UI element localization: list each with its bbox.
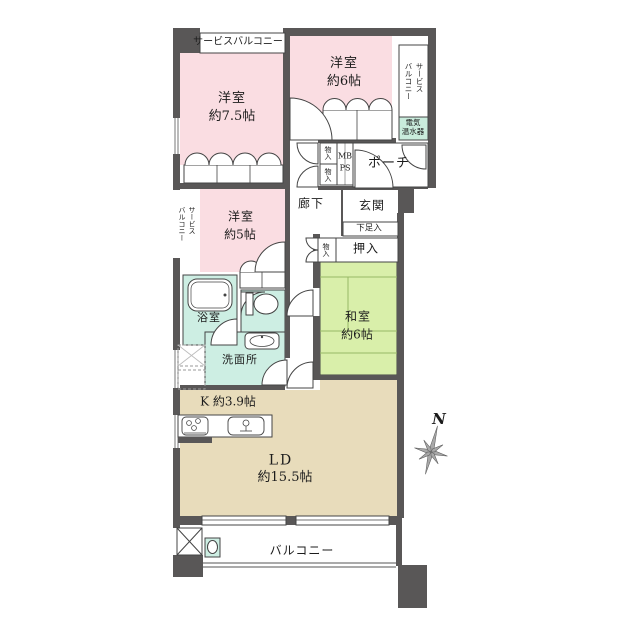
window-sill [296,516,389,525]
label-oshiire: 押入 [353,242,379,255]
label-western-6-size: 約6帖 [327,75,361,89]
label-closet: 物入 [324,146,332,160]
label-water-heater-2: 温水器 [402,128,425,136]
label-service-balcony-top: サービスバルコニー [193,37,283,48]
label-balcony: バルコニー [270,544,335,557]
label-service-balcony-right: サービス バルコニー [403,62,425,100]
label-hallway: 廊下 [298,197,324,210]
closet-strip [240,272,285,288]
label-ld-size: 約15.5帖 [258,471,313,485]
washbasin-fixture [245,333,279,349]
closet-strip [323,110,392,140]
balcony-rail [203,563,396,567]
label-bathroom: 浴室 [197,312,221,324]
label-mb: MB [338,153,352,162]
closet-strip [184,165,283,183]
label-japanese-room-size: 約6帖 [341,328,373,341]
toilet-fixture [246,293,278,315]
slop-sink-basin [208,541,218,554]
label-shoe-closet: 下足入 [356,224,382,233]
label-western-5-name: 洋室 [228,210,254,223]
label-western-5-size: 約5帖 [224,228,256,241]
label-water-heater-1: 電気 [406,119,421,127]
label-ld-name: LD [269,453,294,468]
laundry-space [178,345,205,389]
bathtub-fixture [188,279,232,311]
label-western-6-name: 洋室 [330,57,358,71]
label-western-75-size: 約7.5帖 [209,110,256,124]
window-sill [202,516,286,525]
floor-plan: サービスバルコニー 洋室 約7.5帖 洋室 約6帖 サービス バルコニー 電気 … [0,0,640,640]
label-entrance: 玄関 [359,199,385,212]
label-ps: PS [340,165,351,174]
label-north: N [432,411,446,428]
label-closet: 物入 [322,243,330,257]
label-japanese-room-name: 和室 [345,310,371,323]
label-service-balcony-left: サービス バルコニー [177,207,197,242]
label-porch: ポーチ [368,157,410,171]
label-closet: 物入 [324,168,332,182]
label-kitchen: K 約3.9帖 [200,395,256,408]
compass-star-icon [409,422,454,479]
label-washroom: 洗面所 [222,354,258,366]
label-western-75-name: 洋室 [218,92,246,106]
